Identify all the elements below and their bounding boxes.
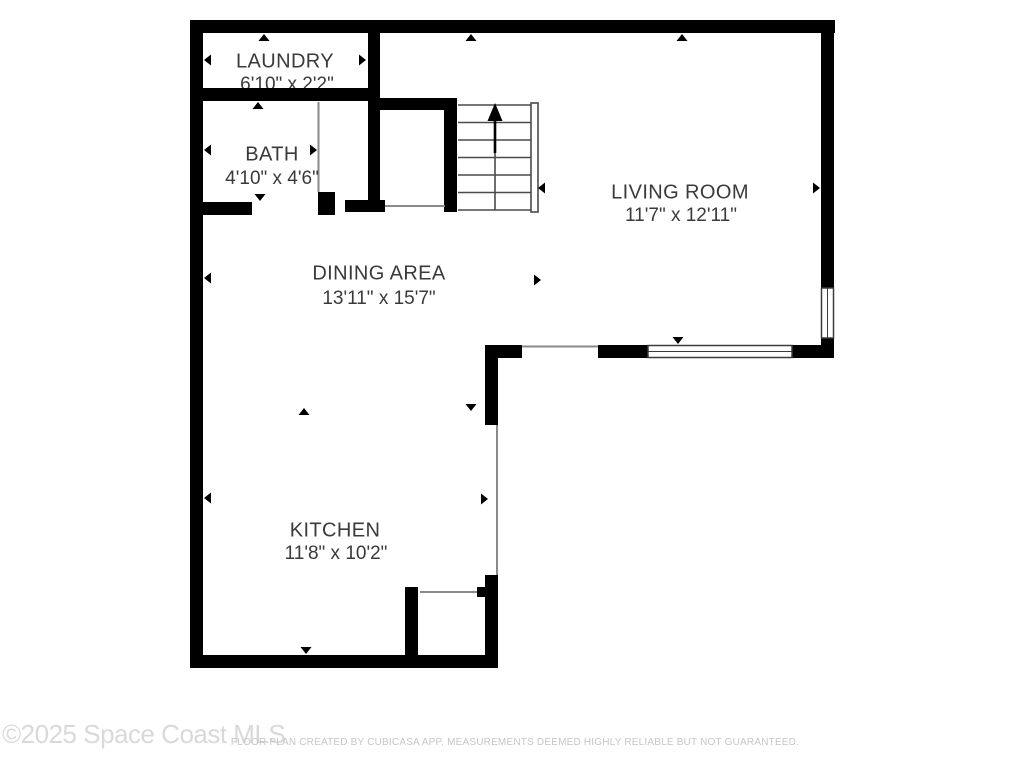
wall-livingroom-bottom-right <box>792 345 834 358</box>
wall-kitchen-right-upper <box>485 345 498 425</box>
wall-left <box>190 20 203 668</box>
room-dimensions-dining-area: 13'11" x 15'7" <box>322 288 435 310</box>
wall-stair-closet-bottom-jamb <box>345 200 385 212</box>
stairs-up-arrow <box>488 103 503 153</box>
room-dimensions-living-room: 11'7" x 12'11" <box>625 205 737 227</box>
wall-bottom <box>190 655 498 668</box>
wall-pantry-stub <box>477 587 487 597</box>
wall-right-upper <box>821 20 834 288</box>
footer-disclaimer: FLOOR PLAN CREATED BY CUBICASA APP. MEAS… <box>231 737 799 748</box>
wall-stair-closet-top <box>368 98 457 110</box>
wall-livingroom-bottom-mid <box>598 345 648 358</box>
walls <box>190 20 835 668</box>
room-label-kitchen: KITCHEN <box>290 520 381 543</box>
stairs-up-arrow-shaft <box>494 119 497 153</box>
room-label-laundry: LAUNDRY <box>236 51 334 74</box>
stair-rail <box>531 103 538 212</box>
wall-laundry-bottom <box>190 88 380 101</box>
wall-hall-divider <box>368 33 380 212</box>
room-label-dining-area: DINING AREA <box>312 263 445 286</box>
wall-pantry-left <box>405 587 418 668</box>
floor-plan-drawing <box>0 0 1024 768</box>
room-dimensions-bath: 4'10" x 4'6" <box>225 168 319 190</box>
wall-top <box>190 20 835 33</box>
room-label-living-room: LIVING ROOM <box>611 182 749 205</box>
wall-stair-closet-right <box>444 98 457 212</box>
floor-plan-canvas: 6'10" x 2'2" <box>0 0 1024 768</box>
room-dimensions-kitchen: 11'8" x 10'2" <box>285 543 388 565</box>
wall-bath-door-stub <box>318 192 335 215</box>
wall-bath-bottom <box>190 202 252 215</box>
room-label-bath: BATH <box>245 144 298 167</box>
